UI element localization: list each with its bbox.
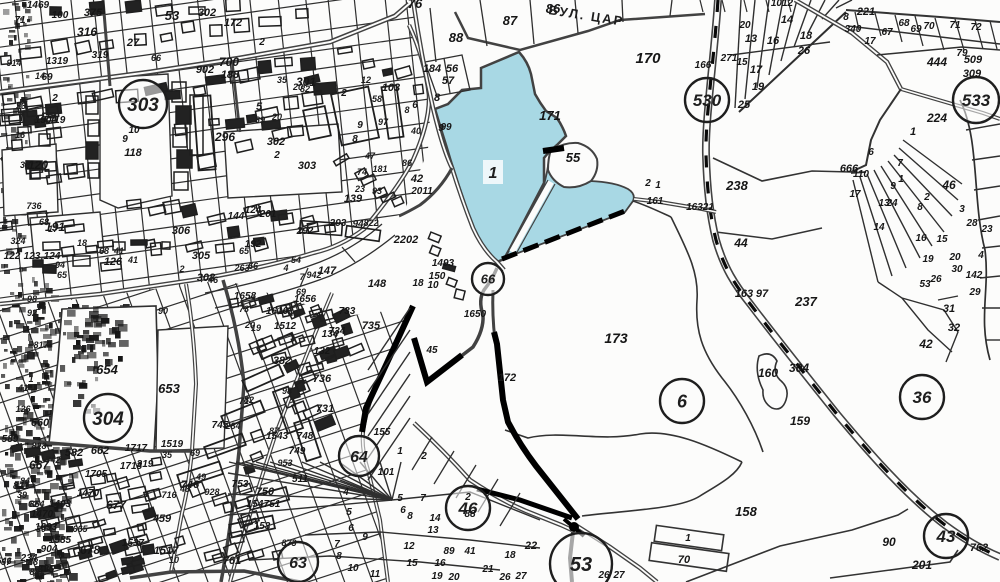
svg-text:2011: 2011 bbox=[410, 186, 433, 197]
svg-text:82: 82 bbox=[244, 395, 254, 405]
svg-text:159: 159 bbox=[790, 414, 810, 428]
svg-text:582: 582 bbox=[65, 447, 83, 459]
svg-text:17: 17 bbox=[849, 189, 861, 200]
svg-text:69: 69 bbox=[296, 287, 306, 297]
svg-text:90: 90 bbox=[882, 535, 896, 549]
svg-text:750: 750 bbox=[256, 486, 275, 498]
svg-text:749: 749 bbox=[289, 446, 306, 457]
svg-text:530: 530 bbox=[693, 91, 722, 110]
svg-text:100: 100 bbox=[52, 10, 69, 21]
svg-text:44: 44 bbox=[733, 236, 748, 250]
svg-text:662: 662 bbox=[91, 445, 109, 457]
svg-text:19: 19 bbox=[922, 254, 934, 265]
svg-text:8: 8 bbox=[352, 134, 358, 145]
svg-text:2: 2 bbox=[464, 492, 471, 503]
svg-text:11: 11 bbox=[370, 569, 381, 580]
svg-text:1470: 1470 bbox=[77, 488, 100, 499]
svg-text:41: 41 bbox=[127, 255, 138, 265]
svg-text:71: 71 bbox=[14, 15, 26, 26]
svg-text:144: 144 bbox=[228, 211, 245, 222]
svg-text:53: 53 bbox=[570, 554, 592, 576]
svg-text:190/19: 190/19 bbox=[35, 115, 66, 126]
svg-text:87: 87 bbox=[269, 426, 280, 436]
svg-text:12: 12 bbox=[361, 75, 371, 85]
svg-text:2: 2 bbox=[420, 451, 427, 462]
svg-text:166: 166 bbox=[695, 60, 712, 71]
svg-text:70: 70 bbox=[678, 554, 691, 566]
svg-text:31: 31 bbox=[943, 303, 955, 315]
svg-text:753: 753 bbox=[232, 479, 249, 490]
svg-text:74: 74 bbox=[357, 167, 367, 177]
svg-text:27: 27 bbox=[514, 571, 527, 582]
svg-text:53: 53 bbox=[165, 8, 180, 23]
svg-text:55: 55 bbox=[566, 150, 581, 165]
svg-text:39: 39 bbox=[255, 115, 265, 125]
svg-text:382: 382 bbox=[273, 355, 291, 367]
svg-text:14: 14 bbox=[781, 14, 793, 26]
svg-text:160: 160 bbox=[758, 366, 778, 380]
svg-text:678: 678 bbox=[80, 543, 100, 557]
svg-text:238: 238 bbox=[725, 178, 748, 193]
svg-text:1493: 1493 bbox=[432, 258, 455, 269]
svg-text:66: 66 bbox=[151, 53, 162, 63]
svg-text:67: 67 bbox=[881, 27, 893, 38]
svg-text:17: 17 bbox=[48, 224, 59, 234]
svg-text:142: 142 bbox=[966, 270, 983, 281]
svg-text:9: 9 bbox=[890, 181, 896, 192]
svg-text:16: 16 bbox=[434, 558, 446, 569]
svg-text:736: 736 bbox=[313, 373, 332, 385]
svg-text:84: 84 bbox=[20, 476, 30, 486]
svg-text:98: 98 bbox=[282, 386, 292, 396]
svg-text:6: 6 bbox=[412, 100, 418, 111]
svg-text:20: 20 bbox=[447, 572, 460, 582]
svg-text:340: 340 bbox=[845, 24, 862, 35]
svg-text:953: 953 bbox=[277, 458, 292, 468]
svg-text:16: 16 bbox=[915, 233, 927, 244]
svg-text:63: 63 bbox=[289, 555, 307, 572]
svg-text:2: 2 bbox=[258, 37, 265, 48]
svg-text:3: 3 bbox=[959, 204, 965, 215]
svg-text:88: 88 bbox=[449, 30, 464, 45]
svg-text:716: 716 bbox=[161, 490, 177, 500]
svg-text:19: 19 bbox=[431, 571, 443, 582]
svg-text:122: 122 bbox=[4, 251, 21, 262]
svg-text:304: 304 bbox=[92, 409, 124, 430]
svg-text:2202: 2202 bbox=[393, 234, 418, 246]
svg-text:42: 42 bbox=[410, 173, 423, 185]
svg-text:46: 46 bbox=[207, 275, 219, 285]
svg-text:9: 9 bbox=[362, 532, 368, 543]
svg-text:24: 24 bbox=[885, 198, 898, 209]
svg-text:15: 15 bbox=[406, 558, 418, 569]
svg-text:58: 58 bbox=[372, 94, 382, 104]
svg-text:1705: 1705 bbox=[85, 469, 108, 480]
svg-text:126: 126 bbox=[15, 404, 31, 414]
svg-text:139: 139 bbox=[344, 193, 363, 205]
svg-text:1319: 1319 bbox=[46, 56, 69, 67]
svg-text:942: 942 bbox=[306, 270, 321, 280]
svg-text:9: 9 bbox=[122, 134, 128, 145]
svg-text:5: 5 bbox=[256, 101, 263, 113]
svg-text:14: 14 bbox=[36, 302, 46, 312]
svg-text:7: 7 bbox=[334, 539, 340, 550]
svg-text:39: 39 bbox=[17, 490, 27, 500]
svg-text:23: 23 bbox=[980, 224, 993, 235]
svg-text:1717: 1717 bbox=[125, 443, 148, 454]
svg-text:14: 14 bbox=[429, 513, 441, 524]
svg-text:10: 10 bbox=[128, 125, 140, 136]
svg-text:2: 2 bbox=[51, 93, 58, 104]
svg-text:40: 40 bbox=[410, 126, 421, 136]
svg-text:13: 13 bbox=[427, 525, 439, 536]
svg-text:654: 654 bbox=[96, 362, 118, 377]
svg-text:26: 26 bbox=[797, 45, 811, 57]
svg-text:19: 19 bbox=[752, 81, 765, 93]
svg-text:66: 66 bbox=[248, 261, 259, 271]
svg-text:57: 57 bbox=[442, 75, 455, 87]
svg-text:271: 271 bbox=[720, 53, 738, 64]
svg-text:65: 65 bbox=[57, 270, 68, 280]
svg-text:8: 8 bbox=[336, 551, 342, 562]
svg-text:98: 98 bbox=[27, 294, 37, 304]
svg-text:7: 7 bbox=[420, 493, 426, 504]
svg-text:148: 148 bbox=[368, 278, 387, 290]
svg-text:172: 172 bbox=[498, 372, 516, 384]
svg-text:123: 123 bbox=[24, 251, 41, 262]
svg-text:153: 153 bbox=[254, 521, 271, 532]
svg-text:36: 36 bbox=[913, 388, 932, 407]
svg-text:1: 1 bbox=[397, 446, 403, 457]
svg-text:10: 10 bbox=[169, 555, 179, 565]
svg-text:864: 864 bbox=[29, 499, 44, 509]
svg-text:589: 589 bbox=[2, 434, 19, 445]
svg-text:201: 201 bbox=[911, 558, 932, 572]
svg-text:20: 20 bbox=[271, 112, 282, 122]
svg-text:26: 26 bbox=[929, 274, 942, 285]
svg-text:292: 292 bbox=[296, 226, 314, 237]
svg-text:302: 302 bbox=[267, 136, 285, 148]
svg-text:42: 42 bbox=[918, 337, 933, 351]
svg-text:1: 1 bbox=[655, 180, 661, 191]
svg-text:68: 68 bbox=[99, 246, 109, 256]
svg-text:731: 731 bbox=[316, 403, 334, 415]
svg-text:47: 47 bbox=[364, 151, 376, 161]
svg-text:677: 677 bbox=[106, 498, 127, 512]
svg-text:21: 21 bbox=[481, 564, 494, 575]
svg-text:4: 4 bbox=[977, 250, 984, 261]
svg-text:665: 665 bbox=[72, 524, 88, 534]
svg-text:8: 8 bbox=[407, 511, 413, 522]
svg-text:873: 873 bbox=[281, 538, 296, 548]
svg-text:16: 16 bbox=[767, 35, 780, 47]
svg-text:161: 161 bbox=[647, 196, 664, 207]
svg-text:103: 103 bbox=[382, 82, 400, 94]
svg-text:8: 8 bbox=[404, 105, 409, 115]
svg-text:79: 79 bbox=[956, 48, 968, 59]
svg-text:1470: 1470 bbox=[31, 509, 54, 520]
svg-text:444: 444 bbox=[926, 55, 947, 69]
svg-text:822: 822 bbox=[363, 218, 378, 228]
svg-text:22: 22 bbox=[524, 540, 537, 552]
svg-text:39: 39 bbox=[20, 160, 30, 170]
svg-text:86: 86 bbox=[402, 158, 413, 168]
svg-text:316: 316 bbox=[77, 25, 97, 39]
svg-text:15: 15 bbox=[936, 234, 948, 245]
svg-text:25: 25 bbox=[737, 99, 751, 111]
svg-text:181: 181 bbox=[372, 164, 387, 174]
svg-text:20: 20 bbox=[948, 252, 961, 263]
svg-text:6: 6 bbox=[348, 523, 354, 534]
svg-text:170: 170 bbox=[635, 50, 661, 67]
svg-text:184: 184 bbox=[423, 63, 441, 75]
svg-text:761: 761 bbox=[223, 555, 241, 567]
svg-text:41: 41 bbox=[113, 246, 124, 256]
svg-text:118: 118 bbox=[124, 147, 142, 159]
svg-text:33: 33 bbox=[16, 101, 26, 111]
svg-text:762: 762 bbox=[970, 542, 988, 554]
svg-text:126: 126 bbox=[104, 256, 123, 268]
svg-text:64: 64 bbox=[350, 449, 368, 466]
svg-text:35: 35 bbox=[162, 450, 173, 460]
svg-text:736: 736 bbox=[26, 201, 42, 211]
svg-text:172: 172 bbox=[224, 17, 242, 29]
svg-text:284: 284 bbox=[224, 421, 240, 431]
svg-text:69: 69 bbox=[910, 24, 922, 35]
svg-text:221: 221 bbox=[856, 6, 875, 18]
svg-text:87: 87 bbox=[1, 557, 12, 567]
svg-text:92: 92 bbox=[27, 308, 37, 318]
svg-text:17: 17 bbox=[864, 36, 876, 47]
svg-text:26: 26 bbox=[597, 570, 610, 581]
svg-text:303: 303 bbox=[298, 160, 316, 172]
svg-text:733: 733 bbox=[339, 306, 356, 317]
svg-text:201: 201 bbox=[259, 209, 277, 220]
svg-text:46: 46 bbox=[941, 178, 956, 192]
svg-text:1512: 1512 bbox=[274, 321, 297, 332]
svg-text:10: 10 bbox=[427, 280, 439, 291]
svg-text:70: 70 bbox=[923, 21, 935, 32]
svg-text:660: 660 bbox=[31, 417, 50, 429]
svg-text:2: 2 bbox=[273, 150, 280, 161]
svg-text:6: 6 bbox=[868, 147, 874, 158]
svg-text:87: 87 bbox=[503, 13, 518, 28]
svg-text:94: 94 bbox=[55, 260, 65, 270]
svg-text:700: 700 bbox=[219, 55, 239, 69]
svg-text:76: 76 bbox=[408, 0, 423, 11]
svg-text:904: 904 bbox=[41, 544, 58, 555]
svg-text:302: 302 bbox=[198, 7, 216, 19]
svg-text:1616: 1616 bbox=[266, 306, 289, 317]
svg-text:18: 18 bbox=[504, 550, 516, 561]
svg-text:459: 459 bbox=[152, 513, 172, 525]
svg-text:1: 1 bbox=[685, 533, 691, 544]
svg-text:12: 12 bbox=[403, 541, 415, 552]
svg-text:10: 10 bbox=[347, 563, 359, 574]
svg-text:56: 56 bbox=[446, 63, 459, 75]
svg-text:533: 533 bbox=[962, 91, 991, 110]
svg-text:27: 27 bbox=[126, 37, 140, 49]
svg-text:20: 20 bbox=[292, 82, 303, 92]
svg-text:511: 511 bbox=[292, 474, 308, 485]
svg-text:93: 93 bbox=[372, 186, 382, 196]
svg-text:173: 173 bbox=[604, 330, 628, 346]
svg-text:43: 43 bbox=[936, 527, 956, 546]
svg-text:89: 89 bbox=[443, 546, 455, 557]
svg-text:1537: 1537 bbox=[122, 538, 145, 549]
svg-text:1: 1 bbox=[28, 374, 33, 384]
svg-text:88: 88 bbox=[28, 557, 38, 567]
svg-text:41: 41 bbox=[17, 383, 28, 393]
svg-text:4: 4 bbox=[282, 263, 288, 273]
svg-text:914: 914 bbox=[6, 58, 21, 68]
svg-text:17: 17 bbox=[750, 64, 763, 76]
svg-text:303: 303 bbox=[127, 95, 159, 116]
svg-text:29: 29 bbox=[968, 287, 981, 298]
svg-text:1519: 1519 bbox=[161, 439, 184, 450]
svg-text:35: 35 bbox=[277, 75, 288, 85]
svg-text:735: 735 bbox=[362, 320, 381, 332]
svg-text:748: 748 bbox=[297, 431, 314, 442]
svg-text:28: 28 bbox=[965, 218, 978, 229]
svg-text:32: 32 bbox=[948, 322, 960, 334]
svg-text:110: 110 bbox=[853, 169, 869, 180]
svg-text:751: 751 bbox=[264, 499, 281, 510]
svg-text:71: 71 bbox=[949, 20, 961, 31]
svg-text:97: 97 bbox=[756, 288, 769, 300]
svg-text:171: 171 bbox=[539, 108, 561, 123]
svg-text:134: 134 bbox=[322, 329, 339, 340]
svg-text:90: 90 bbox=[158, 306, 168, 316]
svg-text:8: 8 bbox=[917, 202, 923, 213]
svg-text:319: 319 bbox=[92, 50, 109, 61]
svg-text:163: 163 bbox=[735, 288, 753, 300]
svg-text:319: 319 bbox=[137, 459, 154, 470]
svg-text:18: 18 bbox=[77, 238, 87, 248]
svg-text:188: 188 bbox=[221, 69, 240, 81]
svg-text:155: 155 bbox=[374, 427, 391, 438]
svg-text:101: 101 bbox=[378, 467, 395, 478]
svg-text:65: 65 bbox=[239, 246, 250, 256]
svg-text:69: 69 bbox=[190, 448, 200, 458]
svg-text:309: 309 bbox=[963, 68, 982, 80]
svg-text:27: 27 bbox=[612, 570, 625, 581]
svg-text:13: 13 bbox=[745, 33, 757, 45]
svg-text:23: 23 bbox=[354, 184, 365, 194]
svg-text:45: 45 bbox=[425, 345, 438, 356]
svg-text:2: 2 bbox=[178, 264, 184, 274]
svg-text:2: 2 bbox=[340, 88, 347, 99]
svg-text:97: 97 bbox=[378, 117, 389, 127]
svg-text:54: 54 bbox=[291, 255, 301, 265]
svg-text:9: 9 bbox=[357, 120, 363, 131]
svg-text:224: 224 bbox=[926, 111, 947, 125]
svg-text:4: 4 bbox=[342, 487, 349, 498]
svg-text:653: 653 bbox=[158, 381, 180, 396]
svg-text:375: 375 bbox=[84, 7, 103, 19]
svg-text:828: 828 bbox=[31, 441, 46, 451]
svg-text:19: 19 bbox=[251, 323, 261, 333]
svg-text:30: 30 bbox=[951, 264, 963, 275]
svg-text:1658: 1658 bbox=[234, 291, 257, 302]
svg-text:237: 237 bbox=[794, 294, 817, 309]
svg-text:30: 30 bbox=[36, 524, 46, 534]
svg-text:18: 18 bbox=[800, 30, 813, 42]
svg-text:132: 132 bbox=[314, 346, 331, 357]
svg-text:26: 26 bbox=[498, 572, 511, 582]
svg-text:73: 73 bbox=[239, 304, 249, 314]
svg-text:66: 66 bbox=[481, 272, 496, 287]
svg-text:18: 18 bbox=[412, 278, 424, 289]
svg-text:6: 6 bbox=[677, 391, 688, 411]
svg-text:902: 902 bbox=[196, 64, 214, 76]
svg-text:7: 7 bbox=[897, 158, 903, 169]
svg-text:158: 158 bbox=[735, 504, 757, 519]
svg-text:5: 5 bbox=[346, 507, 352, 518]
svg-text:99: 99 bbox=[440, 122, 452, 133]
svg-text:94: 94 bbox=[352, 219, 364, 230]
svg-text:154: 154 bbox=[247, 499, 264, 510]
svg-text:1012: 1012 bbox=[771, 0, 794, 9]
svg-text:8: 8 bbox=[434, 92, 441, 104]
svg-text:124: 124 bbox=[245, 205, 262, 216]
svg-text:68: 68 bbox=[898, 18, 910, 29]
svg-text:8: 8 bbox=[843, 12, 849, 23]
svg-text:304: 304 bbox=[789, 361, 809, 375]
svg-text:306: 306 bbox=[172, 225, 191, 237]
svg-text:6: 6 bbox=[400, 505, 406, 516]
svg-text:1: 1 bbox=[910, 126, 916, 138]
svg-text:1469: 1469 bbox=[27, 0, 50, 11]
svg-text:742: 742 bbox=[45, 455, 60, 465]
svg-text:2: 2 bbox=[923, 192, 930, 203]
svg-text:324: 324 bbox=[10, 236, 25, 246]
svg-text:1: 1 bbox=[898, 174, 904, 185]
svg-text:817: 817 bbox=[33, 340, 49, 350]
svg-text:2: 2 bbox=[644, 178, 651, 189]
svg-text:928: 928 bbox=[204, 487, 219, 497]
svg-text:293: 293 bbox=[329, 218, 347, 229]
svg-text:1: 1 bbox=[489, 165, 498, 182]
svg-text:53: 53 bbox=[919, 279, 931, 290]
svg-text:16321: 16321 bbox=[686, 202, 714, 213]
svg-text:5: 5 bbox=[397, 493, 403, 504]
svg-text:14: 14 bbox=[35, 71, 45, 81]
svg-text:296: 296 bbox=[214, 130, 235, 144]
svg-text:20: 20 bbox=[738, 20, 751, 31]
svg-text:16: 16 bbox=[15, 130, 26, 140]
svg-text:887: 887 bbox=[29, 567, 45, 577]
svg-text:14: 14 bbox=[873, 222, 885, 233]
svg-text:72: 72 bbox=[970, 22, 982, 33]
svg-text:1650: 1650 bbox=[464, 309, 487, 320]
svg-text:120: 120 bbox=[28, 158, 48, 172]
svg-text:49: 49 bbox=[195, 472, 206, 482]
svg-text:305: 305 bbox=[192, 250, 211, 262]
svg-text:48: 48 bbox=[179, 484, 190, 494]
svg-text:41: 41 bbox=[463, 546, 476, 557]
svg-text:15: 15 bbox=[736, 57, 748, 68]
svg-text:88: 88 bbox=[464, 509, 476, 520]
